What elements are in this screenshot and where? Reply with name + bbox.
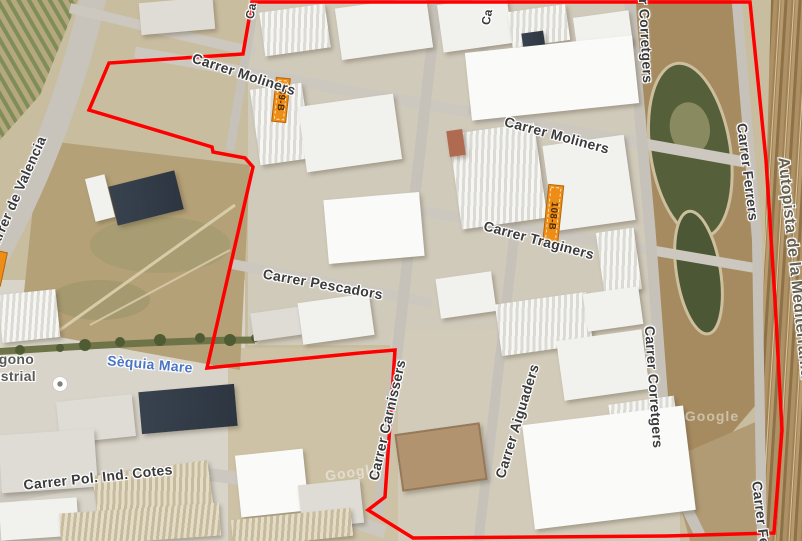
street-label-partial-1: Ca xyxy=(243,2,260,20)
street-label-cotes: Carrer Pol. Ind. Cotes xyxy=(23,461,174,493)
street-label-ferrers-top: Carrer Ferrers xyxy=(734,122,762,222)
street-label-partial-2: Ca xyxy=(479,8,496,26)
street-label-pescadors: Carrer Pescadors xyxy=(262,266,384,303)
street-label-valencia: Carrer de Valencia xyxy=(0,133,49,256)
highway-label-autopista: Autopista de la Mediterrania xyxy=(773,156,802,379)
street-label-moliners-1: Carrer Moliners xyxy=(190,50,298,99)
area-label-poligono: Polígono Industrial xyxy=(0,351,38,385)
area-label-line1: Polígono xyxy=(0,351,38,368)
street-label-carnissers: Carrer Carnissers xyxy=(365,358,408,482)
labels-layer: Google Google Carrer Moliners Carrer Mol… xyxy=(0,0,802,541)
satellite-map-canvas[interactable]: 39-B 108-B Google Google Carrer Moliners… xyxy=(0,0,802,541)
street-label-corretgers-top: Carrer Corretgers xyxy=(634,0,656,84)
street-label-traginers: Carrer Traginers xyxy=(482,218,596,263)
area-label-line2: Industrial xyxy=(0,368,38,385)
water-label-sequia: Sèquia Mare xyxy=(107,352,194,375)
street-label-moliners-2: Carrer Moliners xyxy=(503,113,611,156)
street-label-aiguaders: Carrer Aiguaders xyxy=(492,362,542,480)
street-label-ferrers-bottom: Carrer Ferrers xyxy=(749,480,777,541)
google-watermark: Google xyxy=(685,408,739,424)
street-label-corretgers-mid: Carrer Corretgers xyxy=(642,325,667,448)
